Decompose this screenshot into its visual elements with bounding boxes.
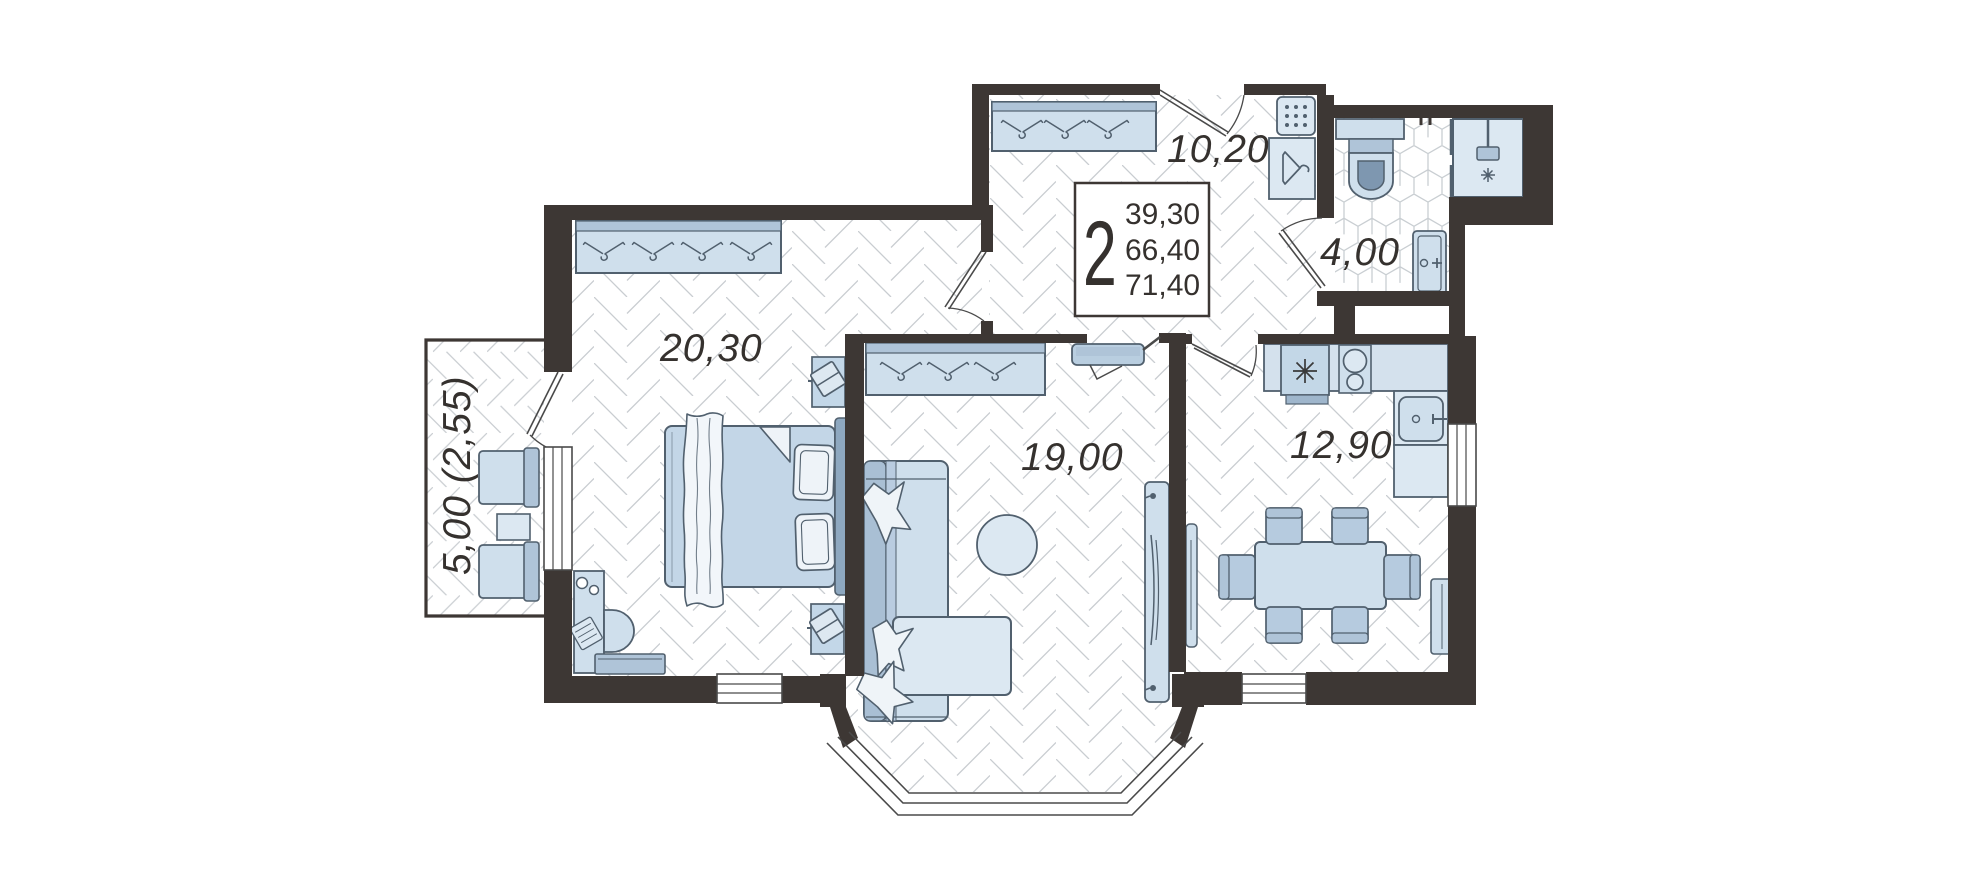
svg-text:19,00: 19,00 xyxy=(1021,436,1124,479)
svg-text:4,00: 4,00 xyxy=(1320,231,1400,274)
svg-text:66,40: 66,40 xyxy=(1125,234,1200,267)
svg-text:39,30: 39,30 xyxy=(1125,198,1200,231)
svg-text:12,90: 12,90 xyxy=(1290,424,1393,467)
svg-text:2: 2 xyxy=(1083,201,1117,305)
svg-text:5,00 (2,55): 5,00 (2,55) xyxy=(436,375,479,575)
svg-text:71,40: 71,40 xyxy=(1125,269,1200,302)
svg-text:10,20: 10,20 xyxy=(1167,128,1270,171)
svg-text:20,30: 20,30 xyxy=(659,327,763,370)
